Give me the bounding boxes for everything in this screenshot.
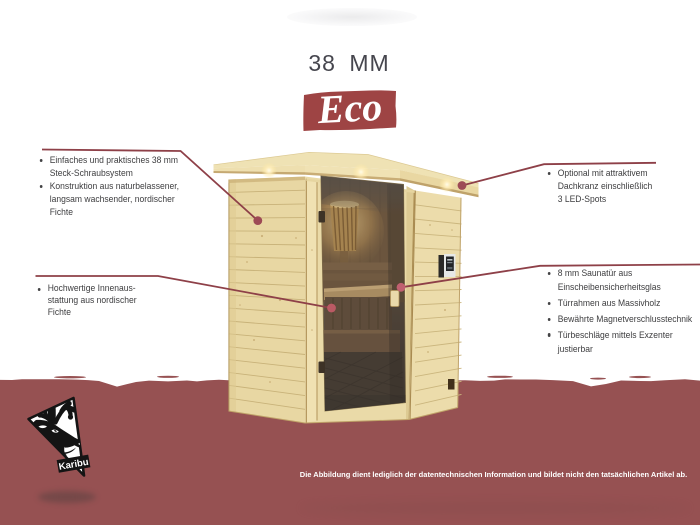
svg-text:Eco: Eco [316,84,384,132]
